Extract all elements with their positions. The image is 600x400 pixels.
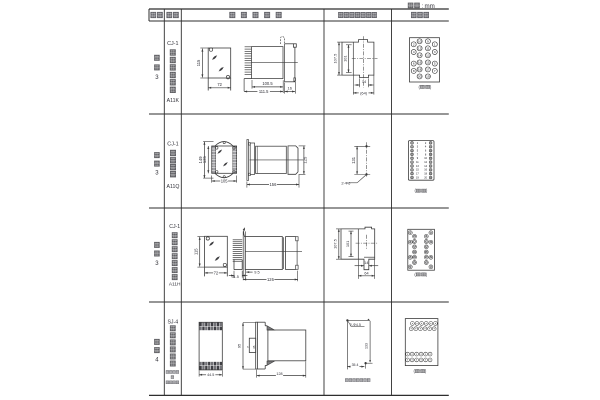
svg-text:CJ-1: CJ-1: [169, 224, 180, 230]
svg-text:10: 10: [418, 39, 422, 43]
svg-text:20: 20: [418, 75, 422, 79]
svg-text:9.5: 9.5: [254, 270, 259, 275]
svg-text:18: 18: [418, 68, 422, 72]
svg-text:44.5: 44.5: [207, 373, 214, 377]
svg-text:A11H: A11H: [169, 281, 181, 287]
svg-text:156: 156: [270, 182, 278, 187]
svg-text:101: 101: [342, 55, 347, 62]
svg-text:A11K: A11K: [167, 98, 180, 104]
svg-text:8: 8: [413, 69, 415, 73]
svg-text:133: 133: [365, 343, 369, 349]
svg-text:7: 7: [434, 69, 436, 73]
svg-text:72: 72: [214, 270, 219, 275]
svg-text:19: 19: [426, 75, 430, 79]
svg-text:35: 35: [252, 345, 256, 349]
svg-text:105: 105: [221, 178, 229, 183]
svg-text:16: 16: [287, 85, 292, 90]
svg-text:CJ-1: CJ-1: [167, 141, 178, 147]
svg-text:14: 14: [364, 261, 368, 265]
svg-text:64: 64: [364, 272, 368, 276]
svg-text:128: 128: [276, 372, 282, 376]
svg-text:125: 125: [202, 156, 207, 164]
svg-text:101: 101: [345, 241, 350, 248]
svg-text:3: 3: [434, 50, 436, 54]
svg-text:9: 9: [427, 39, 429, 43]
svg-text:SJ-4: SJ-4: [167, 319, 178, 325]
svg-text:11: 11: [426, 46, 429, 50]
svg-text:2-Φ6: 2-Φ6: [341, 180, 351, 185]
svg-text:17: 17: [426, 68, 430, 72]
svg-text:6: 6: [413, 62, 415, 66]
svg-text:126: 126: [267, 277, 275, 282]
svg-text:5: 5: [434, 62, 436, 66]
svg-text:15: 15: [426, 61, 430, 65]
svg-text:(64): (64): [360, 90, 368, 95]
svg-text:125: 125: [303, 156, 308, 164]
svg-text:2-Φ4.5: 2-Φ4.5: [350, 323, 361, 327]
svg-text:2: 2: [413, 42, 415, 46]
svg-text:107.5: 107.5: [333, 54, 338, 64]
svg-text:111.5: 111.5: [259, 89, 269, 94]
svg-text:115: 115: [196, 59, 201, 66]
svg-text:13: 13: [426, 53, 430, 57]
svg-text:95: 95: [237, 343, 242, 348]
svg-text:4: 4: [413, 50, 415, 54]
svg-text:100.5: 100.5: [262, 81, 273, 86]
svg-text:107.5: 107.5: [332, 239, 337, 249]
svg-text:72: 72: [217, 82, 222, 87]
svg-text:1: 1: [434, 42, 436, 46]
svg-text:16: 16: [418, 61, 422, 65]
svg-text:31.5: 31.5: [232, 275, 239, 279]
svg-text:131: 131: [351, 156, 356, 164]
svg-text:35.4: 35.4: [352, 363, 359, 367]
svg-text:115: 115: [194, 248, 199, 255]
svg-text:14: 14: [418, 53, 422, 57]
svg-text:A11Q: A11Q: [167, 184, 180, 190]
svg-text:CJ-1: CJ-1: [167, 41, 178, 47]
svg-text:12: 12: [418, 46, 422, 50]
